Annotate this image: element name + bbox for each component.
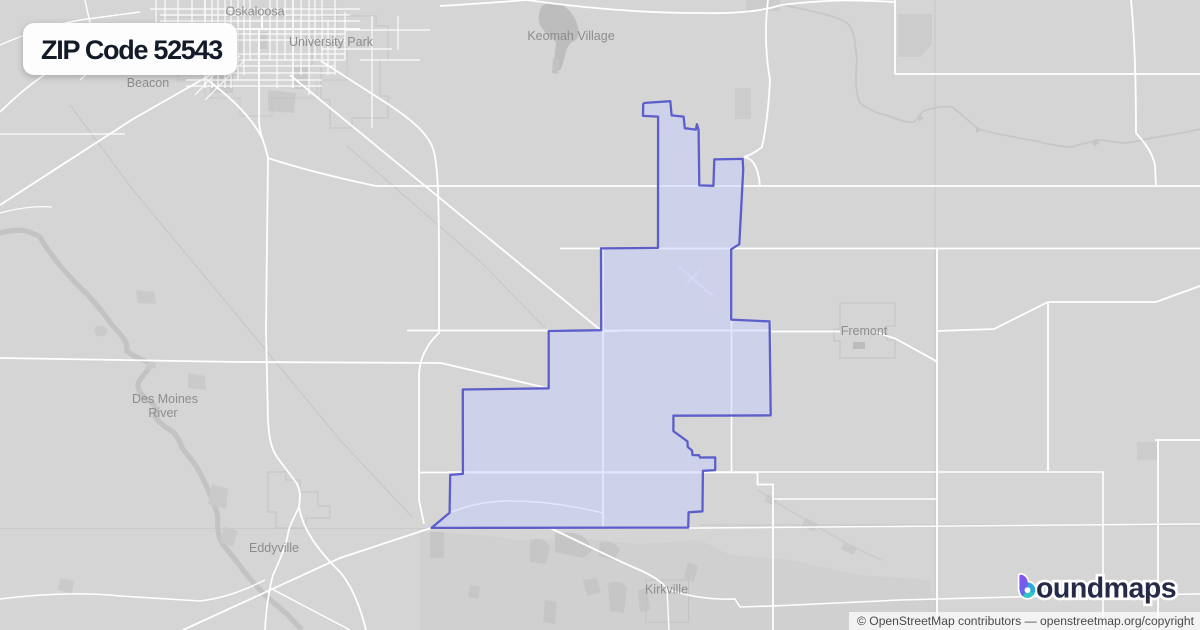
- svg-text:oundmaps: oundmaps: [1036, 573, 1176, 605]
- svg-text:Beacon: Beacon: [127, 76, 169, 90]
- svg-text:River: River: [148, 406, 177, 420]
- svg-text:Eddyville: Eddyville: [249, 541, 299, 555]
- svg-text:Kirkville: Kirkville: [645, 583, 688, 597]
- svg-text:Oskaloosa: Oskaloosa: [225, 5, 284, 19]
- svg-text:Des Moines: Des Moines: [132, 392, 198, 406]
- svg-text:University Park: University Park: [289, 35, 374, 49]
- svg-text:Fremont: Fremont: [841, 324, 888, 338]
- svg-text:Keomah Village: Keomah Village: [527, 29, 614, 43]
